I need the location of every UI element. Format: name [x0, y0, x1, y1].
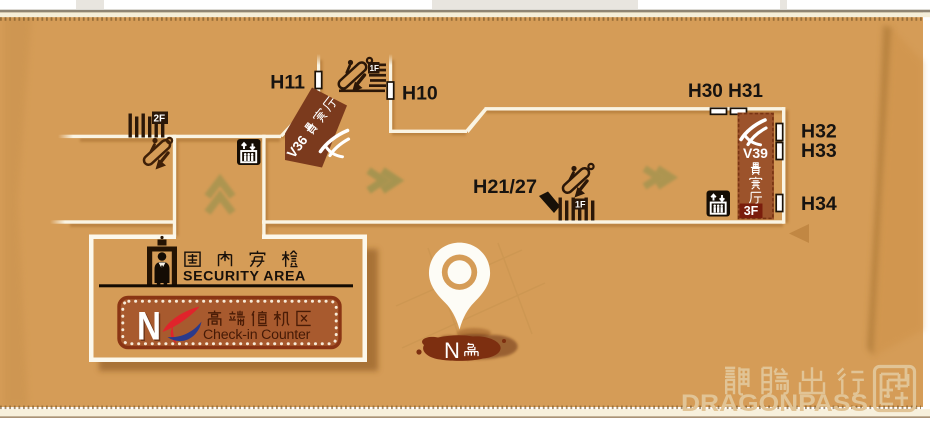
- svg-text:H21/27: H21/27: [473, 176, 537, 198]
- svg-text:SECURITY AREA: SECURITY AREA: [183, 269, 306, 285]
- svg-text:H11: H11: [270, 72, 305, 94]
- svg-text:2F: 2F: [154, 114, 166, 125]
- svg-text:N: N: [137, 305, 161, 349]
- svg-text:DRAGONPASS: DRAGONPASS: [681, 390, 868, 417]
- svg-text:H33: H33: [801, 140, 837, 162]
- svg-text:H34: H34: [801, 193, 837, 215]
- svg-text:3F: 3F: [744, 204, 759, 218]
- svg-text:1F: 1F: [575, 200, 586, 210]
- svg-text:H10: H10: [402, 83, 438, 105]
- svg-text:V39: V39: [743, 145, 768, 161]
- svg-text:Check-in Counter: Check-in Counter: [203, 327, 311, 343]
- svg-text:H30 H31: H30 H31: [688, 80, 763, 102]
- svg-text:1F: 1F: [370, 64, 380, 73]
- svg-text:N: N: [444, 338, 460, 363]
